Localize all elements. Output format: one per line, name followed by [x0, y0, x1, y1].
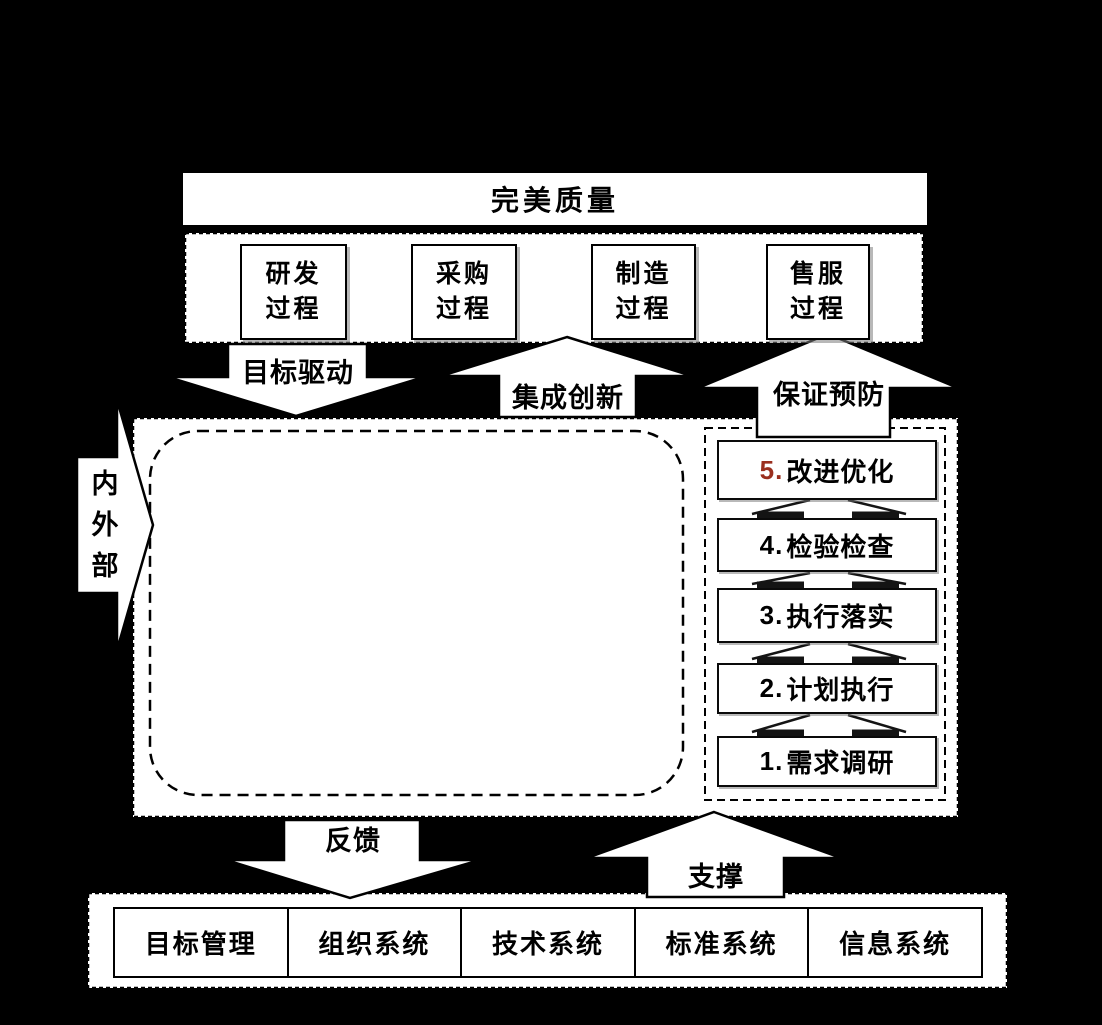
diagram-shape-layer — [0, 0, 1102, 1025]
quality-title-box: 完美质量 — [180, 170, 930, 228]
process-box-research: 研发 过程 — [240, 244, 347, 340]
step-3-label: 执行落实 — [786, 597, 894, 634]
step-box-4: 4. 检验检查 — [717, 518, 937, 572]
feedback-arrow-label: 反馈 — [286, 826, 420, 857]
foundation-cell-standard-system: 标准系统 — [636, 909, 810, 976]
integration-arrow-label: 集成创新 — [496, 383, 640, 414]
step-box-1: 1. 需求调研 — [717, 736, 937, 787]
foundation-cell-organization-system: 组织系统 — [289, 909, 463, 976]
process-box-manufacturing: 制造 过程 — [591, 244, 696, 340]
support-arrow-label: 支撑 — [649, 862, 783, 893]
step-box-5: 5. 改进优化 — [717, 440, 937, 500]
foundation-band: 目标管理 组织系统 技术系统 标准系统 信息系统 — [113, 907, 983, 978]
step-2-number: 2. — [760, 673, 784, 704]
step-2-label: 计划执行 — [786, 670, 894, 707]
goal-driven-arrow-label: 目标驱动 — [224, 358, 372, 389]
step-3-number: 3. — [760, 600, 784, 631]
foundation-cell-technology-system: 技术系统 — [462, 909, 636, 976]
process-box-procurement: 采购 过程 — [411, 244, 517, 340]
quality-title-label: 完美质量 — [491, 179, 619, 219]
prevention-arrow-label: 保证预防 — [758, 380, 900, 411]
step-box-2: 2. 计划执行 — [717, 663, 937, 714]
inner-rounded-dashed-box — [150, 431, 683, 795]
step-5-label: 改进优化 — [786, 452, 894, 489]
foundation-cell-goal-management: 目标管理 — [115, 909, 289, 976]
step-1-number: 1. — [760, 746, 784, 777]
internal-external-arrow-label: 内外部 — [88, 464, 122, 587]
step-1-label: 需求调研 — [786, 743, 894, 780]
step-box-3: 3. 执行落实 — [717, 588, 937, 643]
process-box-after-sales: 售服 过程 — [766, 244, 870, 340]
diagram-canvas: 完美质量 研发 过程 采购 过程 制造 过程 售服 过程 目标驱动 集成创新 保… — [0, 0, 1102, 1025]
step-4-number: 4. — [760, 530, 784, 561]
step-5-number: 5. — [760, 455, 784, 486]
foundation-cell-information-system: 信息系统 — [809, 909, 981, 976]
step-4-label: 检验检查 — [786, 527, 894, 564]
